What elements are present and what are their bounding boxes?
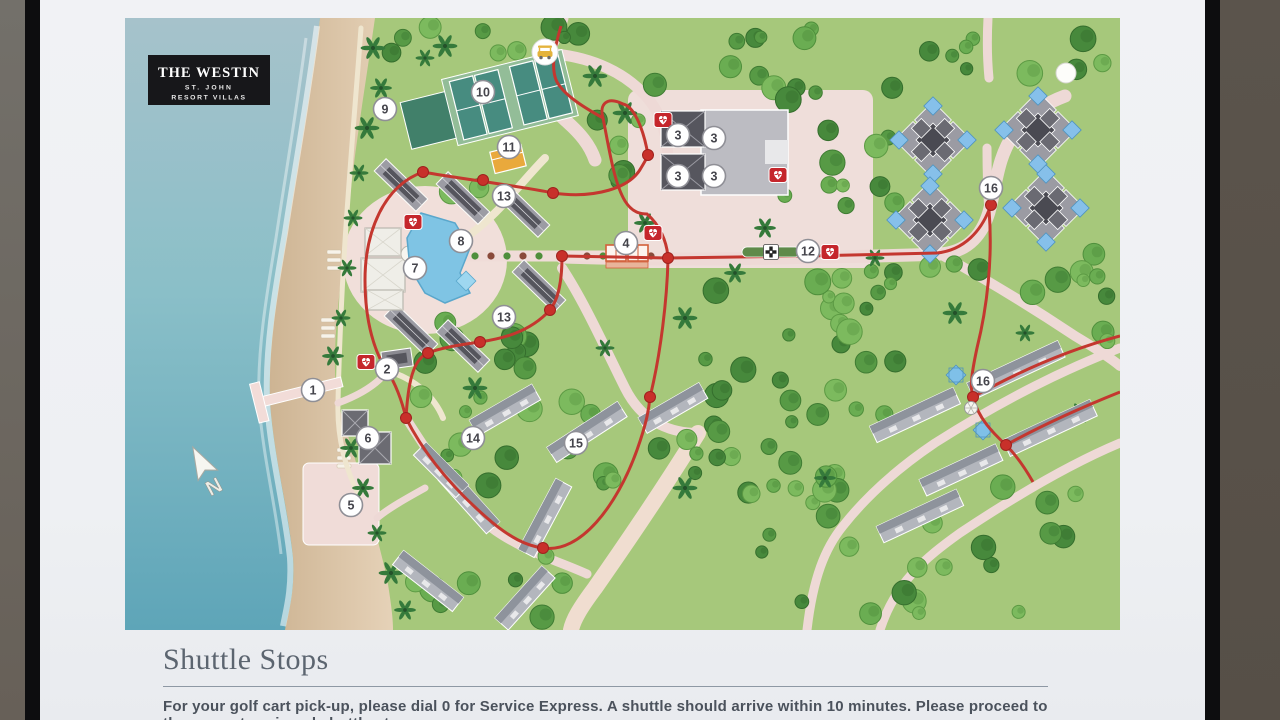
shuttle-stop-marker-9: 9 [374, 98, 397, 121]
svg-text:9: 9 [382, 103, 389, 117]
route-stop-dot [663, 253, 674, 264]
sticker-dot [1056, 63, 1076, 83]
svg-text:13: 13 [497, 190, 511, 204]
svg-text:10: 10 [476, 86, 490, 100]
footer-body: For your golf cart pick-up, please dial … [163, 698, 1063, 720]
resort-map-illustration: N 123333456789101112131314151616 THE WES… [125, 18, 1120, 630]
logo-brand-text: THE WESTIN [158, 65, 260, 81]
shuttle-stop-marker-3: 3 [703, 127, 726, 150]
route-stop-dot [418, 167, 429, 178]
svg-text:16: 16 [976, 375, 990, 389]
aed-heart-icon [769, 168, 787, 183]
route-stop-dot [557, 251, 568, 262]
aed-heart-icon [357, 355, 375, 370]
footer-section: Shuttle Stops For your golf cart pick-up… [125, 630, 1120, 720]
route-stop-dot [423, 348, 434, 359]
wall-background-right [1220, 0, 1280, 720]
westin-logo: THE WESTIN ST. JOHN RESORT VILLAS [148, 55, 270, 105]
aed-heart-icon [821, 245, 839, 260]
divider-line [163, 686, 1048, 687]
resort-map-sign: N 123333456789101112131314151616 THE WES… [40, 0, 1205, 720]
aed-heart-icon [654, 113, 672, 128]
shuttle-stop-marker-7: 7 [404, 257, 427, 280]
shuttle-stop-marker-12: 12 [797, 240, 820, 263]
svg-text:2: 2 [384, 363, 391, 377]
shuttle-stop-marker-1: 1 [302, 379, 325, 402]
svg-text:15: 15 [569, 437, 583, 451]
shuttle-stop-marker-15: 15 [565, 432, 588, 455]
route-stop-dot [475, 337, 486, 348]
shuttle-stop-marker-4: 4 [615, 232, 638, 255]
svg-text:16: 16 [984, 182, 998, 196]
svg-text:8: 8 [458, 235, 465, 249]
svg-text:6: 6 [365, 432, 372, 446]
svg-text:3: 3 [675, 129, 682, 143]
route-stop-dot [478, 175, 489, 186]
route-stop-dot [548, 188, 559, 199]
footer-heading: Shuttle Stops [163, 643, 1120, 677]
villa-pool [946, 365, 966, 385]
svg-text:3: 3 [711, 170, 718, 184]
fountain-icon [965, 402, 978, 415]
shuttle-stop-marker-5: 5 [340, 494, 363, 517]
photo-of-resort-map-sign: N 123333456789101112131314151616 THE WES… [0, 0, 1280, 720]
svg-text:4: 4 [623, 237, 630, 251]
shuttle-stop-marker-3: 3 [667, 124, 690, 147]
route-stop-dot [1001, 440, 1012, 451]
logo-location-text: ST. JOHN [185, 85, 233, 92]
aed-heart-icon [644, 226, 662, 241]
svg-text:11: 11 [502, 141, 515, 155]
svg-text:12: 12 [801, 245, 815, 259]
shuttle-stop-marker-2: 2 [376, 358, 399, 381]
shuttle-stop-marker-6: 6 [357, 427, 380, 450]
svg-text:5: 5 [348, 499, 355, 513]
route-stop-dot [968, 392, 979, 403]
route-stop-dot [545, 305, 556, 316]
svg-text:1: 1 [310, 384, 317, 398]
route-stop-dot [986, 200, 997, 211]
resort-map: N 123333456789101112131314151616 THE WES… [125, 18, 1120, 630]
shuttle-stop-marker-16: 16 [972, 370, 995, 393]
svg-text:3: 3 [711, 132, 718, 146]
svg-text:3: 3 [675, 170, 682, 184]
logo-villas-text: RESORT VILLAS [171, 95, 246, 102]
svg-text:13: 13 [497, 311, 511, 325]
crosswalk-icon [742, 245, 800, 260]
shuttle-stop-marker-10: 10 [472, 81, 495, 104]
svg-text:7: 7 [412, 262, 419, 276]
shuttle-stop-marker-16: 16 [980, 177, 1003, 200]
svg-text:14: 14 [466, 432, 480, 446]
route-stop-dot [401, 413, 412, 424]
route-stop-dot [643, 150, 654, 161]
shuttle-stop-marker-8: 8 [450, 230, 473, 253]
route-stop-dot [645, 392, 656, 403]
shuttle-stop-marker-14: 14 [462, 427, 485, 450]
shuttle-stop-marker-3: 3 [703, 165, 726, 188]
shuttle-stop-marker-11: 11 [498, 136, 521, 159]
shuttle-stop-marker-13: 13 [493, 306, 516, 329]
golf-cart-pickup-icon [532, 39, 558, 65]
route-stop-dot [538, 543, 549, 554]
shuttle-stop-marker-13: 13 [493, 185, 516, 208]
shuttle-stop-marker-3: 3 [667, 165, 690, 188]
aed-heart-icon [404, 215, 422, 230]
wall-background-left [0, 0, 25, 720]
